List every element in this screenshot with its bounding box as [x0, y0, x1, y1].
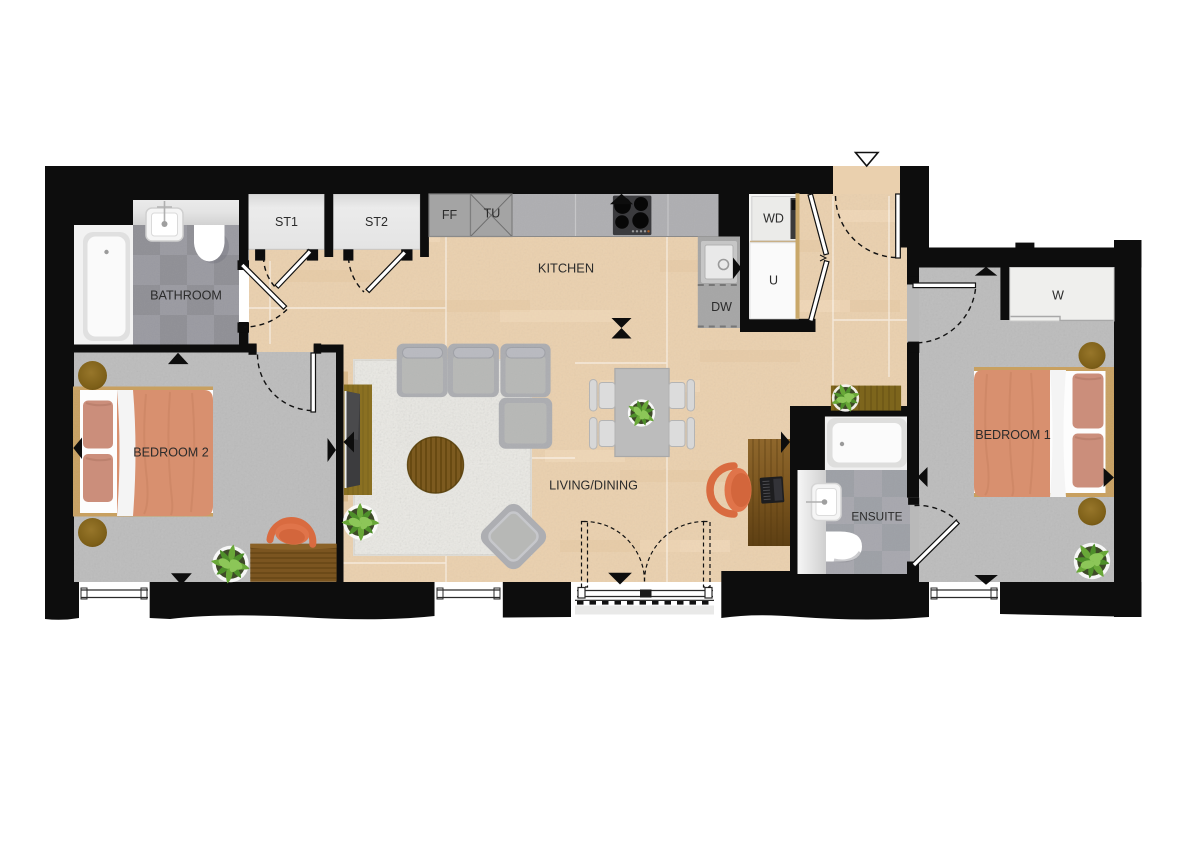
- svg-text:KITCHEN: KITCHEN: [538, 261, 594, 276]
- svg-text:ST2: ST2: [365, 215, 388, 229]
- svg-text:BATHROOM: BATHROOM: [150, 289, 222, 303]
- svg-text:W: W: [1052, 289, 1064, 303]
- svg-text:BEDROOM 2: BEDROOM 2: [133, 446, 209, 460]
- svg-text:ST1: ST1: [275, 215, 298, 229]
- svg-text:U: U: [769, 274, 778, 288]
- svg-text:FF: FF: [442, 208, 458, 222]
- svg-text:BEDROOM 1: BEDROOM 1: [975, 428, 1051, 442]
- svg-text:WD: WD: [763, 212, 784, 226]
- svg-text:TU: TU: [484, 207, 501, 221]
- svg-text:DW: DW: [711, 300, 732, 314]
- svg-text:LIVING/DINING: LIVING/DINING: [549, 479, 638, 493]
- svg-text:ENSUITE: ENSUITE: [851, 510, 902, 524]
